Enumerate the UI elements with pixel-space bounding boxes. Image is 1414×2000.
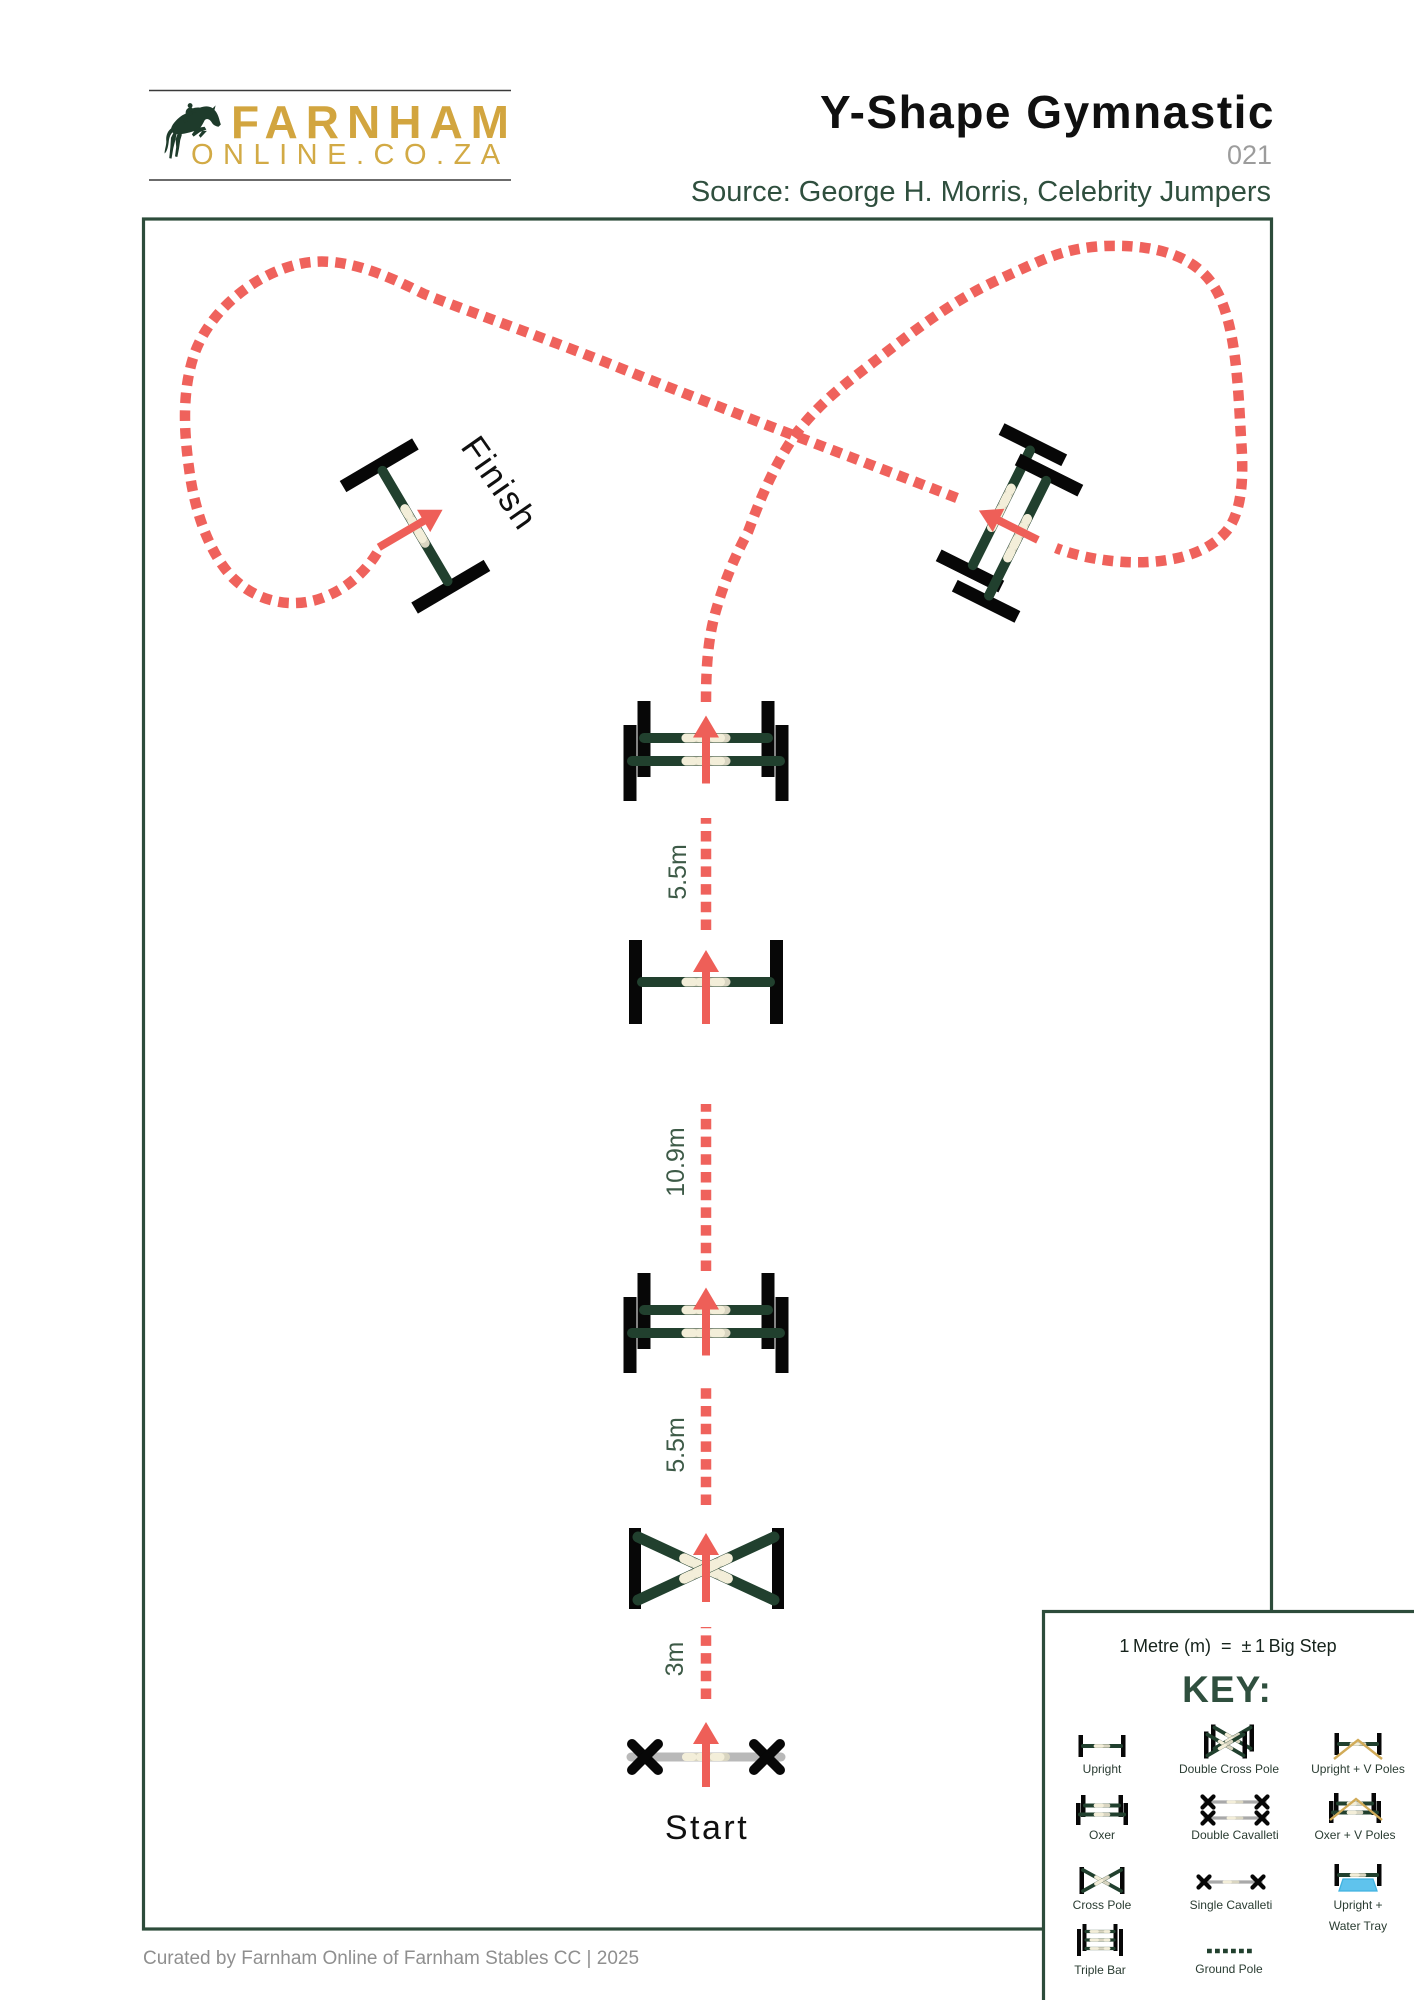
svg-text:5.5m: 5.5m (662, 1417, 690, 1473)
svg-text:Upright: Upright (1083, 1762, 1122, 1776)
svg-text:Start: Start (665, 1809, 749, 1847)
svg-text:Ground Pole: Ground Pole (1195, 1962, 1263, 1976)
svg-text:Water Tray: Water Tray (1329, 1919, 1387, 1933)
svg-text:Y-Shape Gymnastic: Y-Shape Gymnastic (820, 86, 1275, 138)
svg-text:Upright + V Poles: Upright + V Poles (1311, 1762, 1405, 1776)
svg-text:Double Cavalleti: Double Cavalleti (1191, 1828, 1278, 1842)
svg-text:10.9m: 10.9m (662, 1127, 690, 1196)
svg-text:KEY:: KEY: (1182, 1669, 1272, 1710)
svg-text:Single Cavalleti: Single Cavalleti (1190, 1898, 1273, 1912)
svg-text:5.5m: 5.5m (664, 844, 692, 900)
svg-text:Oxer + V Poles: Oxer + V Poles (1314, 1828, 1395, 1842)
svg-text:Curated by Farnham Online of F: Curated by Farnham Online of Farnham Sta… (143, 1948, 639, 1969)
svg-text:3m: 3m (661, 1642, 689, 1677)
svg-text:ONLINE.CO.ZA: ONLINE.CO.ZA (191, 139, 510, 171)
svg-text:Upright +: Upright + (1333, 1898, 1382, 1912)
svg-text:Cross Pole: Cross Pole (1073, 1898, 1132, 1912)
svg-text:Finish: Finish (453, 429, 545, 538)
svg-text:Oxer: Oxer (1089, 1828, 1115, 1842)
svg-text:Double Cross Pole: Double Cross Pole (1179, 1762, 1279, 1776)
svg-text:Triple Bar: Triple Bar (1074, 1963, 1126, 1977)
svg-text:Source: George H. Morris, Cele: Source: George H. Morris, Celebrity Jump… (691, 176, 1271, 208)
svg-text:021: 021 (1227, 140, 1272, 170)
svg-text:1 Metre (m) = ± 1 Big Step: 1 Metre (m) = ± 1 Big Step (1119, 1636, 1336, 1656)
